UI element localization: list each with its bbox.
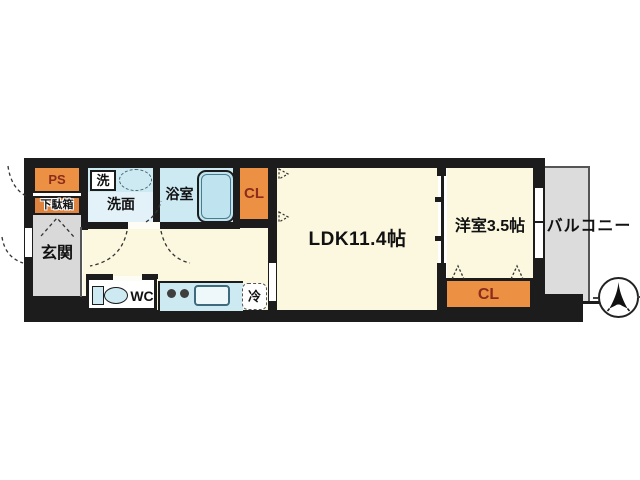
compass [598,277,639,318]
wall-under-closet-upper [233,219,268,228]
floor-plan: PS 下駄箱 玄関 洗 洗面 浴室 CL WC 冷 LDK11.4帖 洋室3.5… [0,0,640,480]
closet-door-mark [278,168,290,180]
wall-washroom-bathroom [153,160,160,227]
wall-under-bathroom [160,222,240,229]
closet-door-mark [509,264,525,281]
wc-label: WC [128,288,156,304]
bathroom-label: 浴室 [162,186,197,202]
wall-entrance-bottom [24,296,88,312]
wc-door-gap [113,276,142,281]
wall-left-upper [24,158,33,227]
washroom-label: 洗面 [93,196,149,212]
entrance-label: 玄関 [33,245,81,263]
sink-icon [194,285,230,306]
north-arrow-icon [600,279,637,316]
wall-bottom [24,310,583,322]
wall-west-right-upper [533,158,545,188]
toilet-bowl-icon [104,287,128,304]
shoe-box-label: 下駄箱 [33,199,81,212]
balcony-edge-line [581,301,600,304]
compass-tick-west [593,297,598,299]
wall-hall-ldk-lower [268,302,277,316]
closet-door-mark [278,211,290,223]
fridge-label: 冷 [242,289,267,304]
toilet-tank-icon [92,286,104,305]
ldk-label: LDK11.4帖 [277,229,438,250]
burner-icon [167,289,176,298]
wall-hall-ldk-upper [268,158,277,262]
burner-icon [180,289,189,298]
washer-label: 洗 [90,172,116,189]
bathtub-icon [197,170,235,223]
western-room-label: 洋室3.5帖 [440,218,540,236]
wall-top [24,158,536,168]
washing-pan-icon [119,169,152,191]
balcony-label: バルコニー [541,218,637,236]
wall-under-washroom [81,222,128,229]
front-door [24,227,33,258]
pipe-space-label: PS [33,172,81,187]
washroom-door-gap [128,222,160,229]
closet-door-mark [450,264,466,281]
partition-tick-upper [435,197,441,202]
wall-entrance-washroom [81,160,88,230]
closet-lower-label: CL [444,286,533,303]
closet-upper-label: CL [240,185,268,202]
wall-balcony-bottom [533,294,583,322]
ldk-door [268,262,277,302]
